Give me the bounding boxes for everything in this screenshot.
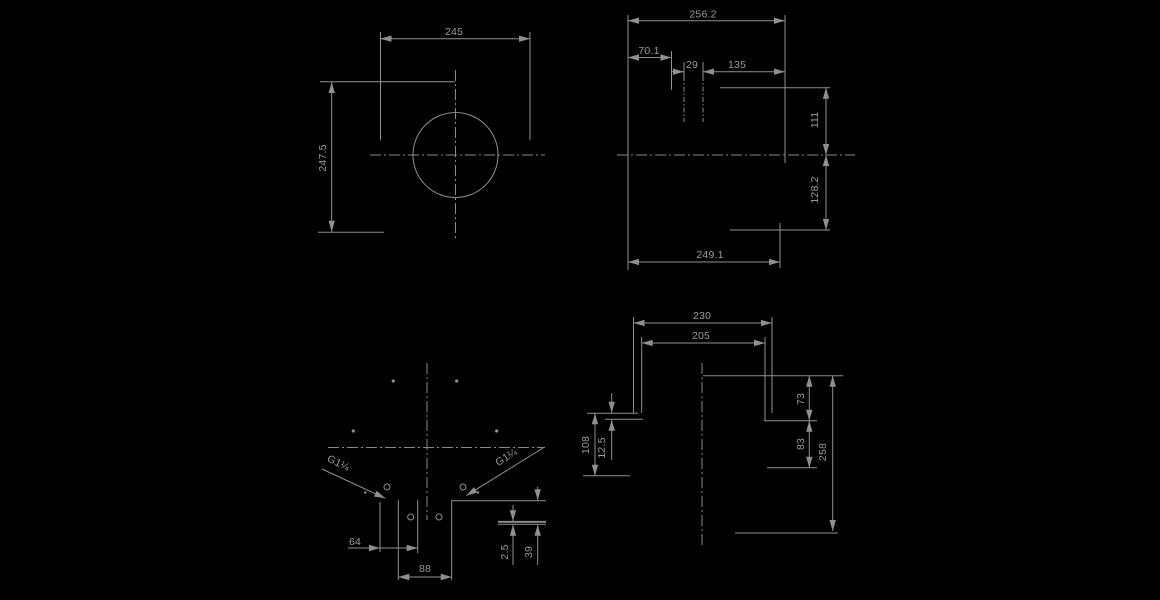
dim-label-128-2: 128.2 [809,176,821,203]
dim-label-39: 39 [523,546,535,558]
dim-label-108: 108 [580,436,592,454]
dim-label-83: 83 [795,438,807,450]
vertex-dot [477,491,479,493]
dim-label-29: 29 [686,59,698,71]
dim-label-249-1: 249.1 [696,249,723,261]
dim-label-256-2: 256.2 [689,9,716,21]
vertex-dot [495,429,498,432]
technical-drawing: 245 247.5 256.2 70.1 29 135 111 128.2 [0,0,1160,600]
dim-label-70-1: 70.1 [638,45,659,57]
dim-label-245: 245 [445,26,463,38]
dim-label-2-5: 2.5 [499,544,511,559]
dim-label-258: 258 [817,443,829,461]
dim-label-111: 111 [809,112,821,129]
dim-label-64: 64 [349,536,361,548]
dim-label-88: 88 [419,563,431,575]
drawing-background [0,0,1160,600]
vertex-dot [392,379,395,382]
vertex-dot [455,379,458,382]
dim-label-230: 230 [693,310,711,322]
vertex-dot [352,429,355,432]
dim-label-247-5: 247.5 [317,144,329,171]
dim-label-73: 73 [795,393,807,405]
dim-label-205: 205 [692,330,710,342]
dim-label-135: 135 [728,59,746,71]
dim-label-12-5: 12.5 [596,437,608,458]
vertex-dot [364,491,366,493]
